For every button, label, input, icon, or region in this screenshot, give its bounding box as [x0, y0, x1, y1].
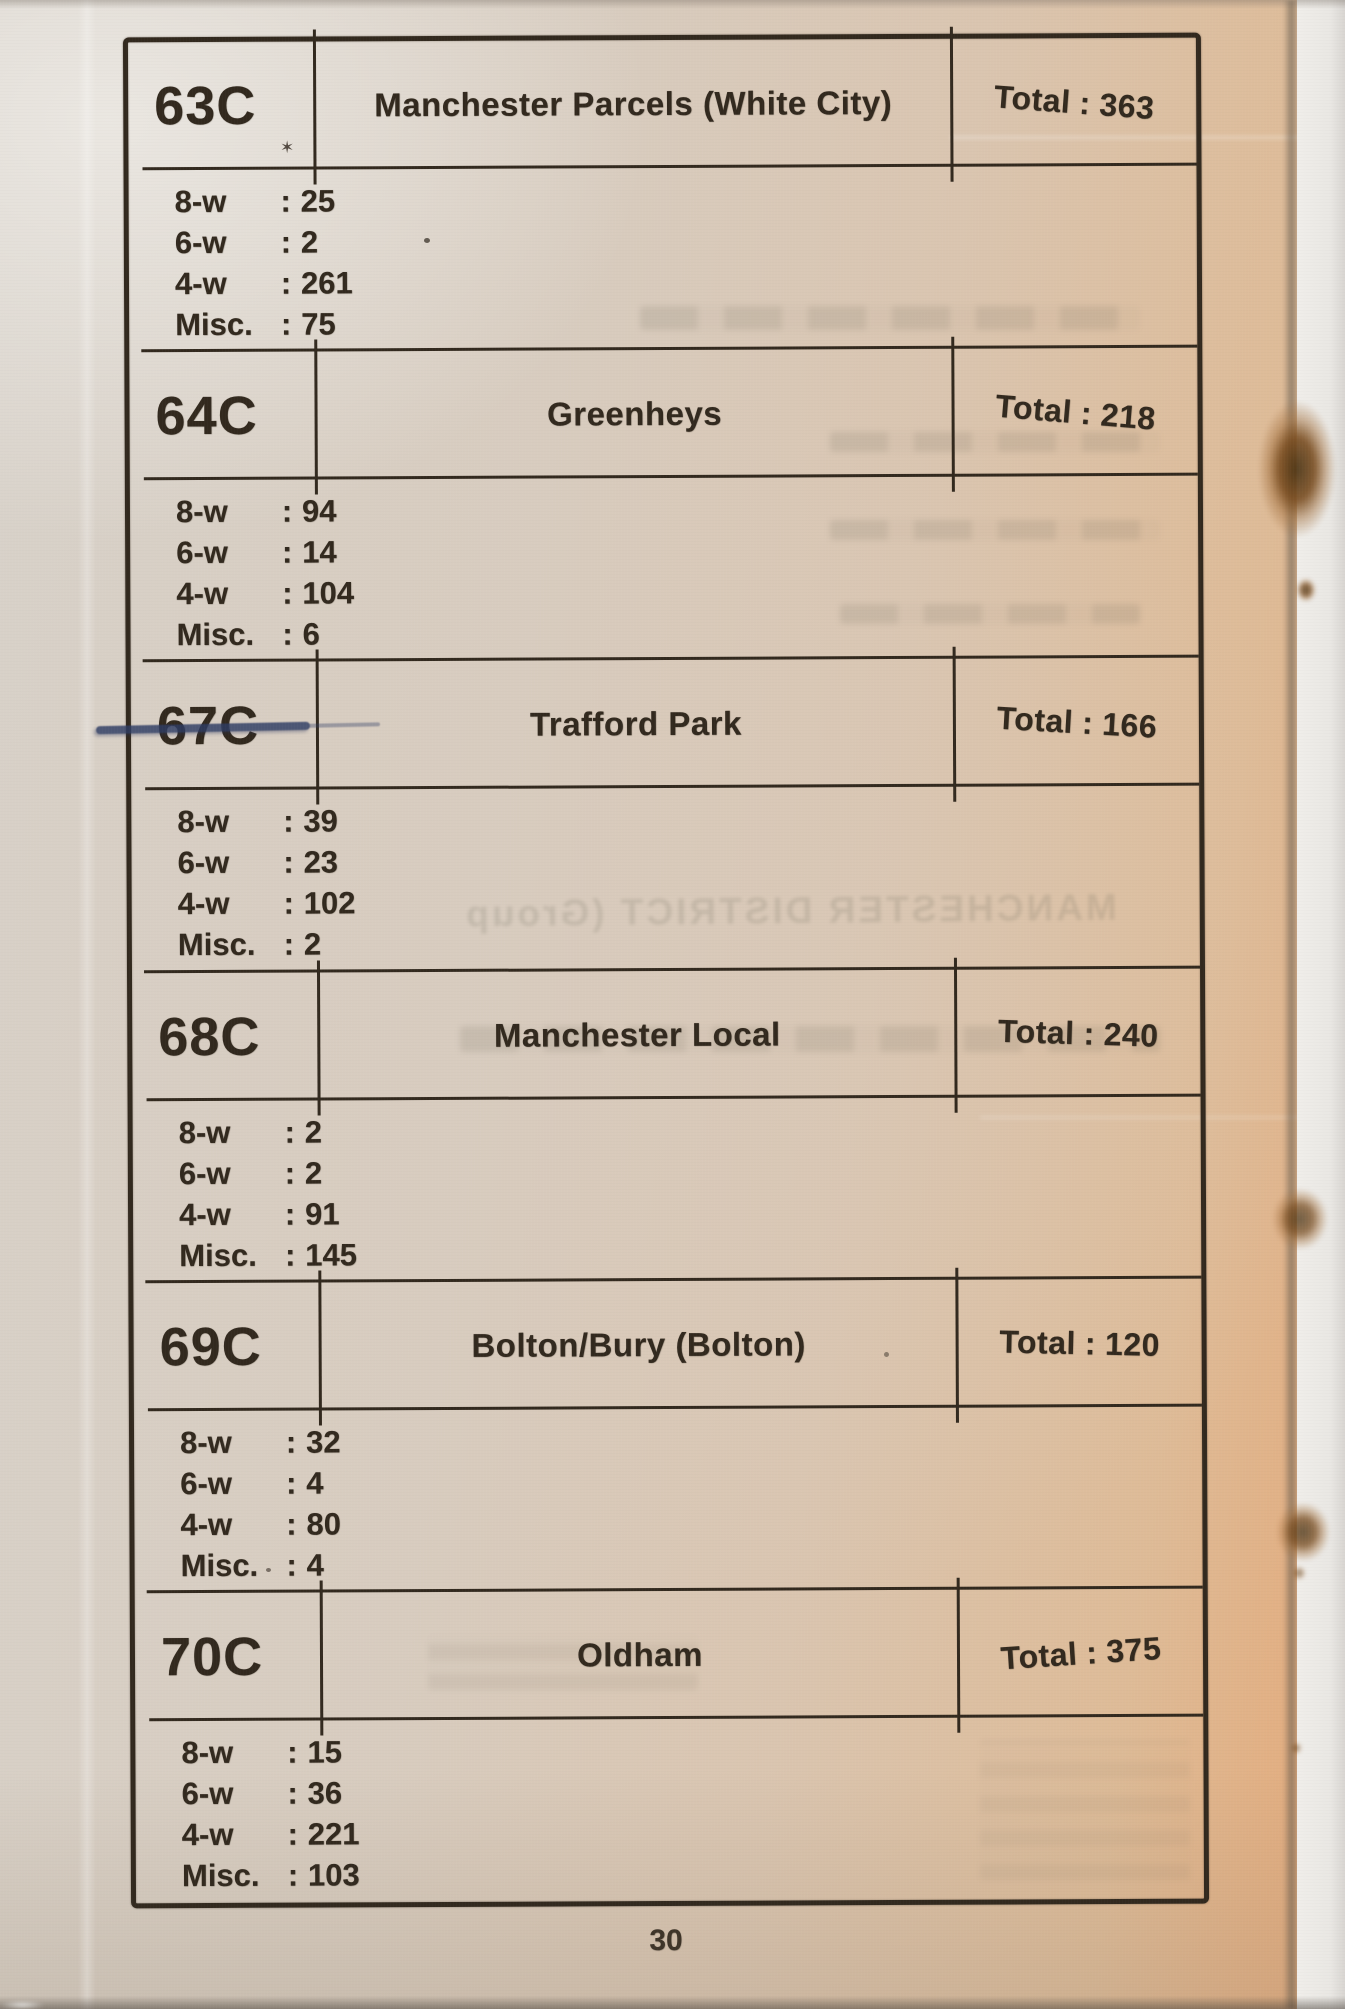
stat-value: 75 — [301, 306, 336, 341]
stat-colon: : — [272, 573, 302, 614]
photo-edge-shadow — [0, 0, 1345, 9]
stat-colon: : — [271, 222, 301, 263]
total-colon: : — [1083, 1014, 1095, 1051]
stat-label: 8-w — [180, 1421, 276, 1462]
stat-row: 8-w:32 — [180, 1417, 1202, 1462]
stat-row: 8-w:39 — [177, 797, 1199, 842]
stat-colon: : — [274, 883, 304, 924]
stat-value: 4 — [306, 1465, 323, 1500]
total-value: 120 — [1105, 1325, 1161, 1363]
depot-stats: 8-w:32 6-w:4 4-w:80 Misc.:4 — [134, 1406, 1203, 1593]
paper-crease — [78, 0, 96, 2009]
stat-label: 8-w — [179, 1111, 275, 1152]
stat-label: 4-w — [180, 1503, 276, 1544]
depot-name: Manchester Local — [494, 1015, 781, 1054]
depot-name: Manchester Parcels (White City) — [374, 84, 892, 124]
stat-label: 6-w — [176, 532, 272, 573]
ink-mark — [280, 138, 294, 158]
total-value: 363 — [1098, 86, 1155, 127]
stat-label: Misc. — [178, 924, 274, 965]
depot-header-row: 68C Manchester Local Total:240 — [132, 968, 1201, 1101]
stat-value: 261 — [301, 265, 353, 300]
stat-row: 8-w:2 — [179, 1107, 1201, 1152]
stat-value: 2 — [301, 225, 318, 260]
depot-name-cell: Bolton/Bury (Bolton) — [319, 1279, 958, 1410]
depot-section-63c: 63C Manchester Parcels (White City) Tota… — [128, 38, 1197, 353]
total-label: Total — [993, 78, 1072, 121]
stat-value: 32 — [306, 1424, 341, 1459]
total-value: 166 — [1101, 706, 1158, 746]
stat-row: 4-w:221 — [182, 1810, 1204, 1855]
depot-section-64c: 64C Greenheys Total:218 8-w:94 6-w:14 4-… — [129, 348, 1198, 663]
stat-value: 94 — [302, 494, 337, 529]
stat-value: 4 — [307, 1547, 324, 1582]
stat-colon: : — [276, 1503, 306, 1544]
stat-value: 2 — [305, 1155, 322, 1190]
stat-value: 102 — [304, 886, 356, 921]
foxing-spot — [1272, 1188, 1328, 1250]
stat-row: Misc.:6 — [176, 610, 1198, 655]
foxing-spot — [1292, 1566, 1306, 1580]
stat-value: 145 — [305, 1237, 357, 1272]
total-label: Total — [996, 700, 1075, 741]
stat-value: 6 — [302, 617, 319, 652]
depot-name-cell: Manchester Local — [318, 969, 957, 1100]
stat-label: Misc. — [175, 304, 271, 345]
total-colon: : — [1085, 1634, 1099, 1672]
depot-name-cell: Manchester Parcels (White City) — [314, 39, 953, 170]
depot-name-cell: Trafford Park — [317, 659, 956, 790]
stat-label: 8-w — [175, 181, 271, 222]
depot-section-67c: 67C Trafford Park Total:166 8-w:39 6-w:2… — [131, 658, 1200, 973]
stat-label: Misc. — [181, 1544, 277, 1585]
total-colon: : — [1081, 704, 1094, 742]
depot-header-row: 69C Bolton/Bury (Bolton) Total:120 — [133, 1278, 1202, 1411]
foxing-spot — [1276, 1502, 1330, 1562]
stat-label: 8-w — [176, 491, 272, 532]
stat-colon: : — [273, 842, 303, 883]
total-colon: : — [1078, 84, 1092, 122]
stat-label: 4-w — [178, 883, 274, 924]
stat-label: 6-w — [177, 842, 273, 883]
stat-value: 2 — [305, 1114, 322, 1149]
stat-label: 4-w — [175, 263, 271, 304]
stat-colon: : — [272, 532, 302, 573]
ink-speck — [424, 238, 430, 243]
stat-label: 6-w — [181, 1773, 277, 1814]
depot-name: Bolton/Bury (Bolton) — [471, 1325, 806, 1364]
total-label: Total — [1000, 1635, 1079, 1677]
depot-stats: 8-w:2 6-w:2 4-w:91 Misc.:145 — [133, 1096, 1202, 1283]
stat-row: 6-w:4 — [180, 1458, 1202, 1503]
stat-colon: : — [273, 801, 303, 842]
stat-value: 221 — [308, 1816, 360, 1851]
stat-colon: : — [275, 1234, 305, 1275]
stat-row: 6-w:23 — [177, 838, 1199, 883]
photo-edge-shadow — [0, 1996, 1345, 2009]
stat-row: 6-w:36 — [181, 1769, 1203, 1814]
stat-label: Misc. — [179, 1234, 275, 1275]
paper-highlight — [0, 1929, 150, 2009]
stat-colon: : — [275, 1111, 305, 1152]
stat-row: 4-w:104 — [176, 569, 1198, 614]
depot-header-row: 70C Oldham Total:375 — [135, 1589, 1204, 1722]
stat-row: 4-w:102 — [178, 879, 1200, 924]
stat-colon: : — [272, 491, 302, 532]
stat-value: 14 — [302, 535, 337, 570]
stat-colon: : — [277, 1772, 307, 1813]
depot-total-cell: Total:166 — [951, 652, 1202, 794]
foxing-spot — [1296, 578, 1316, 602]
total-value: 375 — [1105, 1629, 1162, 1670]
depot-name: Oldham — [577, 1636, 703, 1675]
stat-row: 4-w:91 — [179, 1189, 1201, 1234]
depot-stats: 8-w:25 6-w:2 4-w:261 Misc.:75 — [129, 166, 1198, 353]
total-label: Total — [999, 1323, 1076, 1362]
stat-value: 2 — [304, 927, 321, 962]
page-number: 30 — [127, 1924, 1205, 1958]
page-edge — [1283, 0, 1298, 2009]
depot-section-68c: 68C Manchester Local Total:240 8-w:2 6-w… — [132, 968, 1201, 1283]
depot-total-cell: Total:120 — [956, 1276, 1203, 1409]
stat-row: 6-w:14 — [176, 528, 1198, 573]
scanned-page: MANCHESTER DISTRICT (Group 63C Mancheste… — [0, 0, 1345, 2009]
stat-value: 36 — [308, 1775, 343, 1810]
stat-colon: : — [278, 1854, 308, 1895]
stat-colon: : — [275, 1193, 305, 1234]
depot-code: 64C — [129, 352, 316, 481]
stat-label: 8-w — [181, 1732, 277, 1773]
stat-colon: : — [278, 1813, 308, 1854]
stat-row: 6-w:2 — [175, 218, 1197, 263]
stat-colon: : — [275, 1152, 305, 1193]
depot-section-69c: 69C Bolton/Bury (Bolton) Total:120 8-w:3… — [133, 1278, 1202, 1593]
stat-colon: : — [277, 1731, 307, 1772]
stat-label: 4-w — [182, 1814, 278, 1855]
depot-section-70c: 70C Oldham Total:375 8-w:15 6-w:36 4-w:2… — [135, 1589, 1204, 1904]
depot-header-row: 64C Greenheys Total:218 — [129, 348, 1198, 481]
stat-label: 4-w — [176, 573, 272, 614]
stat-label: 6-w — [179, 1152, 275, 1193]
depot-name-cell: Oldham — [321, 1590, 960, 1721]
depot-total-cell: Total:375 — [955, 1581, 1207, 1725]
stat-row: 6-w:2 — [179, 1148, 1201, 1193]
depot-code: 68C — [132, 972, 319, 1101]
total-colon: : — [1079, 394, 1093, 432]
stat-label: 8-w — [177, 801, 273, 842]
stat-label: 4-w — [179, 1193, 275, 1234]
stat-colon: : — [271, 304, 301, 345]
stat-row: 8-w:15 — [181, 1728, 1203, 1773]
stat-row: Misc.:103 — [182, 1851, 1204, 1896]
foxing-spot — [1258, 400, 1336, 538]
depot-name: Trafford Park — [530, 705, 742, 744]
stat-value: 39 — [303, 804, 338, 839]
depot-name-cell: Greenheys — [315, 349, 954, 480]
foxing-spot — [1290, 1742, 1302, 1754]
depot-stats: 8-w:39 6-w:23 4-w:102 Misc.:2 — [131, 786, 1200, 973]
ink-speck — [266, 1568, 271, 1572]
depot-code: 70C — [135, 1592, 322, 1721]
depot-total-cell: Total:363 — [948, 29, 1201, 175]
stat-value: 103 — [308, 1857, 360, 1892]
stat-value: 104 — [302, 576, 354, 611]
stat-row: 8-w:25 — [175, 177, 1197, 222]
stat-value: 80 — [306, 1506, 341, 1541]
stat-colon: : — [274, 924, 304, 965]
stat-row: Misc.:145 — [179, 1230, 1201, 1275]
depot-allocation-table: 63C Manchester Parcels (White City) Tota… — [123, 33, 1209, 1909]
stat-row: Misc.:75 — [175, 300, 1197, 345]
depot-stats: 8-w:15 6-w:36 4-w:221 Misc.:103 — [135, 1717, 1204, 1904]
stat-row: 4-w:80 — [180, 1499, 1202, 1544]
total-value: 218 — [1099, 396, 1157, 437]
stat-value: 23 — [303, 845, 338, 880]
stat-label: 6-w — [180, 1462, 276, 1503]
stat-colon: : — [272, 614, 302, 655]
depot-stats: 8-w:94 6-w:14 4-w:104 Misc.:6 — [130, 476, 1199, 663]
stat-row: Misc.:4 — [181, 1540, 1203, 1585]
stat-label: 6-w — [175, 222, 271, 263]
stat-value: 15 — [307, 1734, 342, 1769]
stat-row: 8-w:94 — [176, 487, 1198, 532]
stat-colon: : — [276, 1462, 306, 1503]
depot-total-cell: Total:240 — [954, 965, 1202, 1100]
stat-label: Misc. — [182, 1855, 278, 1896]
stat-colon: : — [271, 181, 301, 222]
total-value: 240 — [1103, 1015, 1159, 1054]
stat-colon: : — [276, 1421, 306, 1462]
total-label: Total — [994, 387, 1073, 430]
total-colon: : — [1084, 1325, 1096, 1362]
stat-row: 4-w:261 — [175, 259, 1197, 304]
backdrop — [1297, 0, 1345, 2009]
stat-colon: : — [277, 1544, 307, 1585]
stat-colon: : — [271, 263, 301, 304]
depot-total-cell: Total:218 — [949, 338, 1203, 486]
stat-label: Misc. — [176, 614, 272, 655]
stat-value: 91 — [305, 1196, 340, 1231]
stat-value: 25 — [301, 183, 336, 218]
stat-row: Misc.:2 — [178, 920, 1200, 965]
depot-code: 69C — [133, 1282, 320, 1411]
total-label: Total — [997, 1012, 1075, 1051]
depot-name: Greenheys — [547, 395, 722, 434]
ink-speck — [884, 1352, 889, 1357]
